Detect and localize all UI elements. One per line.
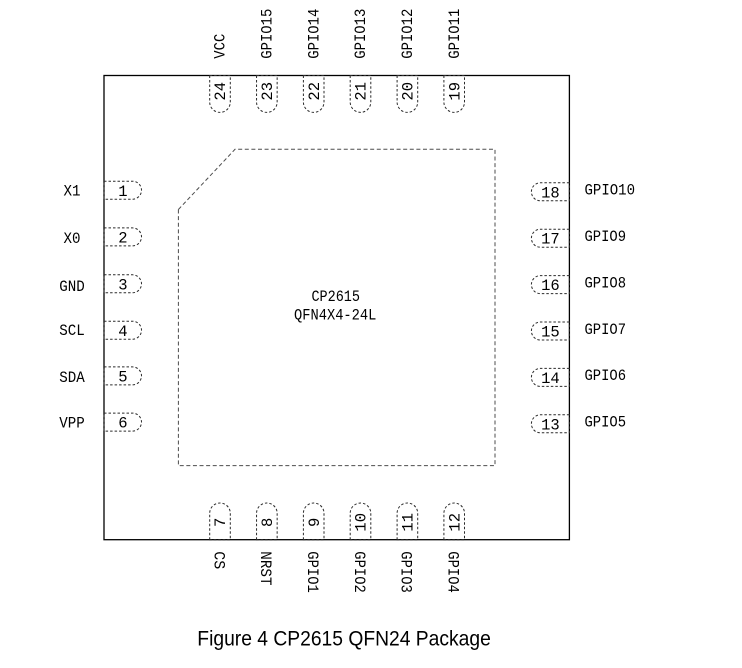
svg-text:GPIO7: GPIO7 bbox=[585, 321, 627, 339]
svg-text:SDA: SDA bbox=[59, 369, 85, 387]
svg-text:VCC: VCC bbox=[212, 34, 230, 59]
svg-text:4: 4 bbox=[118, 323, 127, 341]
svg-text:X0: X0 bbox=[64, 230, 81, 248]
svg-text:GPIO5: GPIO5 bbox=[585, 414, 627, 432]
svg-text:14: 14 bbox=[541, 370, 560, 388]
svg-text:CS: CS bbox=[209, 551, 227, 569]
svg-text:22: 22 bbox=[306, 82, 324, 101]
svg-text:12: 12 bbox=[446, 513, 464, 532]
svg-text:GPIO4: GPIO4 bbox=[444, 551, 462, 593]
svg-text:18: 18 bbox=[541, 184, 560, 202]
svg-text:6: 6 bbox=[118, 415, 127, 433]
svg-text:23: 23 bbox=[259, 82, 277, 101]
svg-text:7: 7 bbox=[212, 518, 230, 527]
svg-text:5: 5 bbox=[118, 369, 127, 387]
svg-text:GPIO14: GPIO14 bbox=[305, 9, 323, 59]
svg-text:GPIO8: GPIO8 bbox=[585, 274, 627, 292]
svg-text:GPIO11: GPIO11 bbox=[446, 9, 464, 59]
svg-text:10: 10 bbox=[353, 513, 371, 532]
svg-text:GPIO10: GPIO10 bbox=[585, 182, 636, 200]
svg-text:2: 2 bbox=[118, 230, 127, 248]
svg-text:NRST: NRST bbox=[256, 551, 274, 585]
svg-text:13: 13 bbox=[541, 416, 560, 434]
svg-text:X1: X1 bbox=[64, 183, 81, 201]
svg-text:8: 8 bbox=[259, 518, 277, 527]
svg-text:17: 17 bbox=[541, 231, 560, 249]
svg-text:19: 19 bbox=[446, 82, 464, 101]
svg-text:GPIO2: GPIO2 bbox=[350, 551, 368, 593]
svg-text:24: 24 bbox=[212, 82, 230, 101]
svg-text:GPIO12: GPIO12 bbox=[399, 9, 417, 59]
svg-text:9: 9 bbox=[306, 518, 324, 527]
svg-text:1: 1 bbox=[118, 183, 127, 201]
svg-text:VPP: VPP bbox=[59, 414, 85, 432]
svg-text:GPIO13: GPIO13 bbox=[352, 9, 370, 59]
svg-text:SCL: SCL bbox=[59, 322, 85, 340]
svg-text:QFN4X4-24L: QFN4X4-24L bbox=[294, 307, 376, 325]
svg-text:GND: GND bbox=[59, 278, 85, 296]
svg-text:15: 15 bbox=[541, 324, 560, 342]
svg-text:GPIO1: GPIO1 bbox=[303, 551, 321, 593]
svg-text:GPIO3: GPIO3 bbox=[397, 551, 415, 593]
svg-text:20: 20 bbox=[400, 82, 418, 101]
svg-text:CP2615: CP2615 bbox=[311, 288, 360, 306]
svg-text:3: 3 bbox=[118, 276, 127, 294]
svg-text:GPIO15: GPIO15 bbox=[259, 9, 277, 59]
svg-text:GPIO6: GPIO6 bbox=[585, 367, 627, 385]
svg-text:16: 16 bbox=[541, 277, 560, 295]
svg-text:11: 11 bbox=[400, 513, 418, 532]
svg-text:Figure 4 CP2615 QFN24 Package: Figure 4 CP2615 QFN24 Package bbox=[197, 625, 491, 650]
svg-text:GPIO9: GPIO9 bbox=[585, 228, 627, 246]
svg-text:21: 21 bbox=[353, 82, 371, 101]
